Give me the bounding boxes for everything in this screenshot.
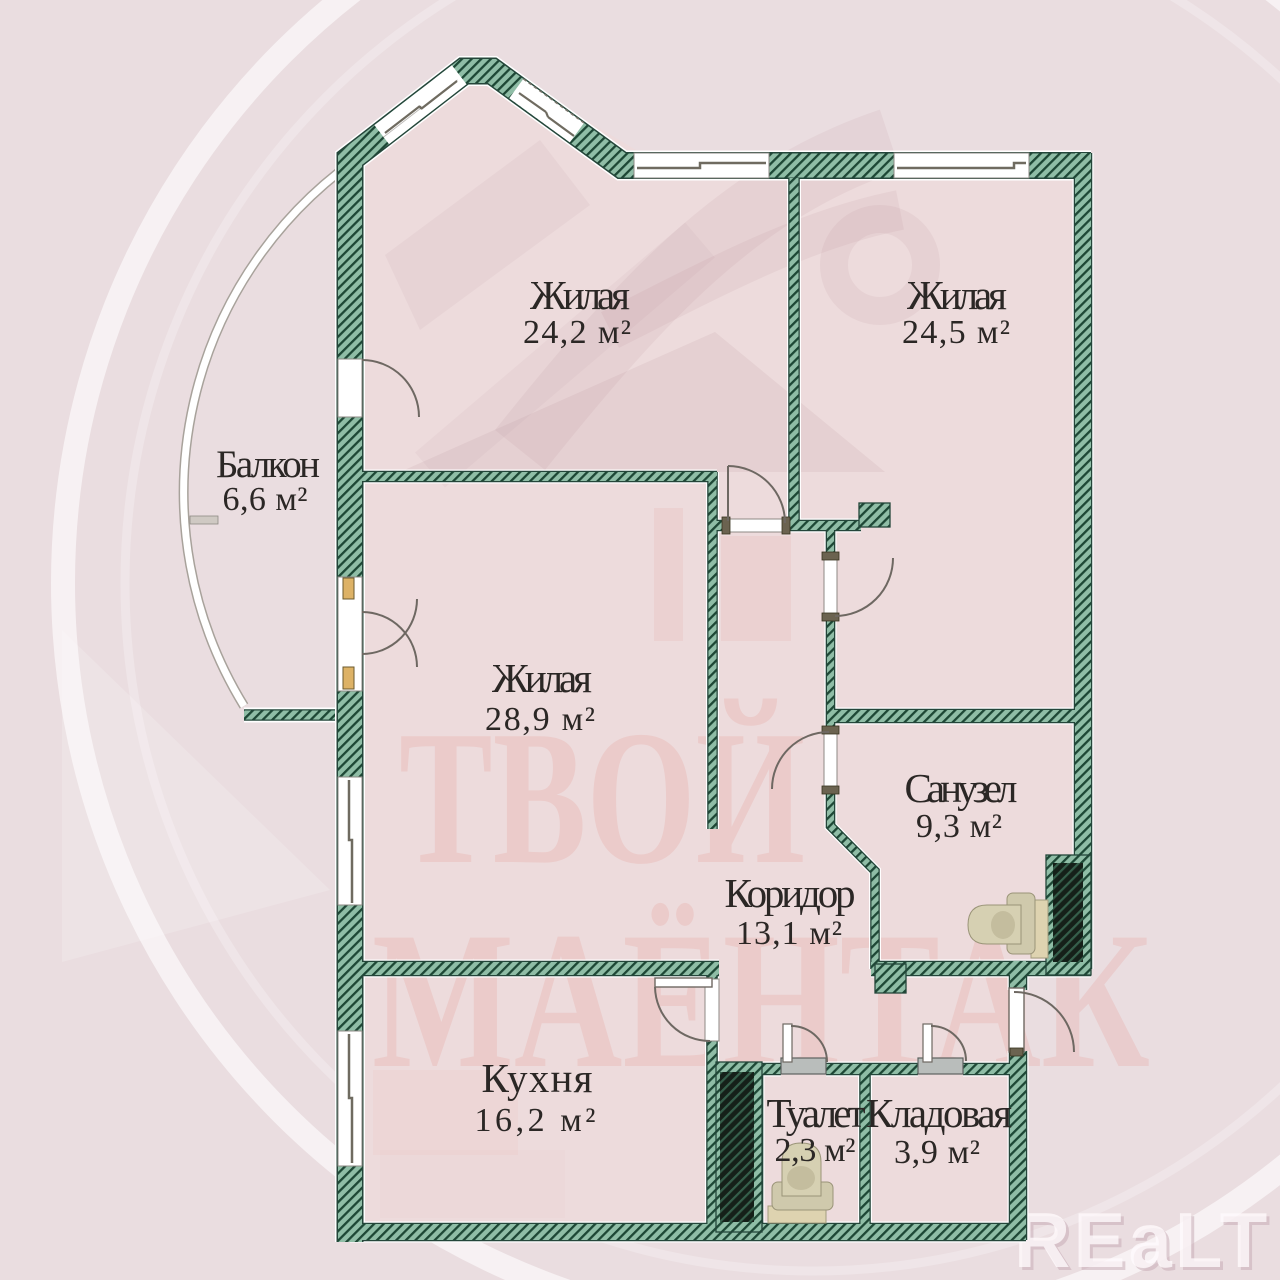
svg-text:Жилая: Жилая (907, 272, 1007, 318)
svg-text:Коридор: Коридор (725, 870, 856, 916)
svg-text:Туалет: Туалет (767, 1090, 866, 1136)
svg-text:13,1 м²: 13,1 м² (736, 915, 842, 952)
svg-text:Жилая: Жилая (492, 655, 592, 701)
svg-text:24,5 м²: 24,5 м² (902, 314, 1010, 351)
svg-text:Кладовая: Кладовая (866, 1090, 1012, 1136)
svg-text:9,3 м²: 9,3 м² (916, 808, 1002, 845)
svg-text:3,9 м²: 3,9 м² (894, 1134, 980, 1171)
svg-text:Санузел: Санузел (905, 765, 1018, 811)
svg-text:24,2 м²: 24,2 м² (523, 314, 631, 351)
svg-text:Балкон: Балкон (216, 443, 320, 486)
svg-text:Кухня: Кухня (482, 1055, 593, 1101)
svg-text:Жилая: Жилая (530, 272, 630, 318)
svg-text:REaLT: REaLT (1014, 1196, 1270, 1280)
svg-text:28,9 м²: 28,9 м² (485, 701, 595, 738)
svg-text:6,6 м²: 6,6 м² (223, 481, 308, 518)
svg-text:2,3 м²: 2,3 м² (775, 1132, 856, 1169)
